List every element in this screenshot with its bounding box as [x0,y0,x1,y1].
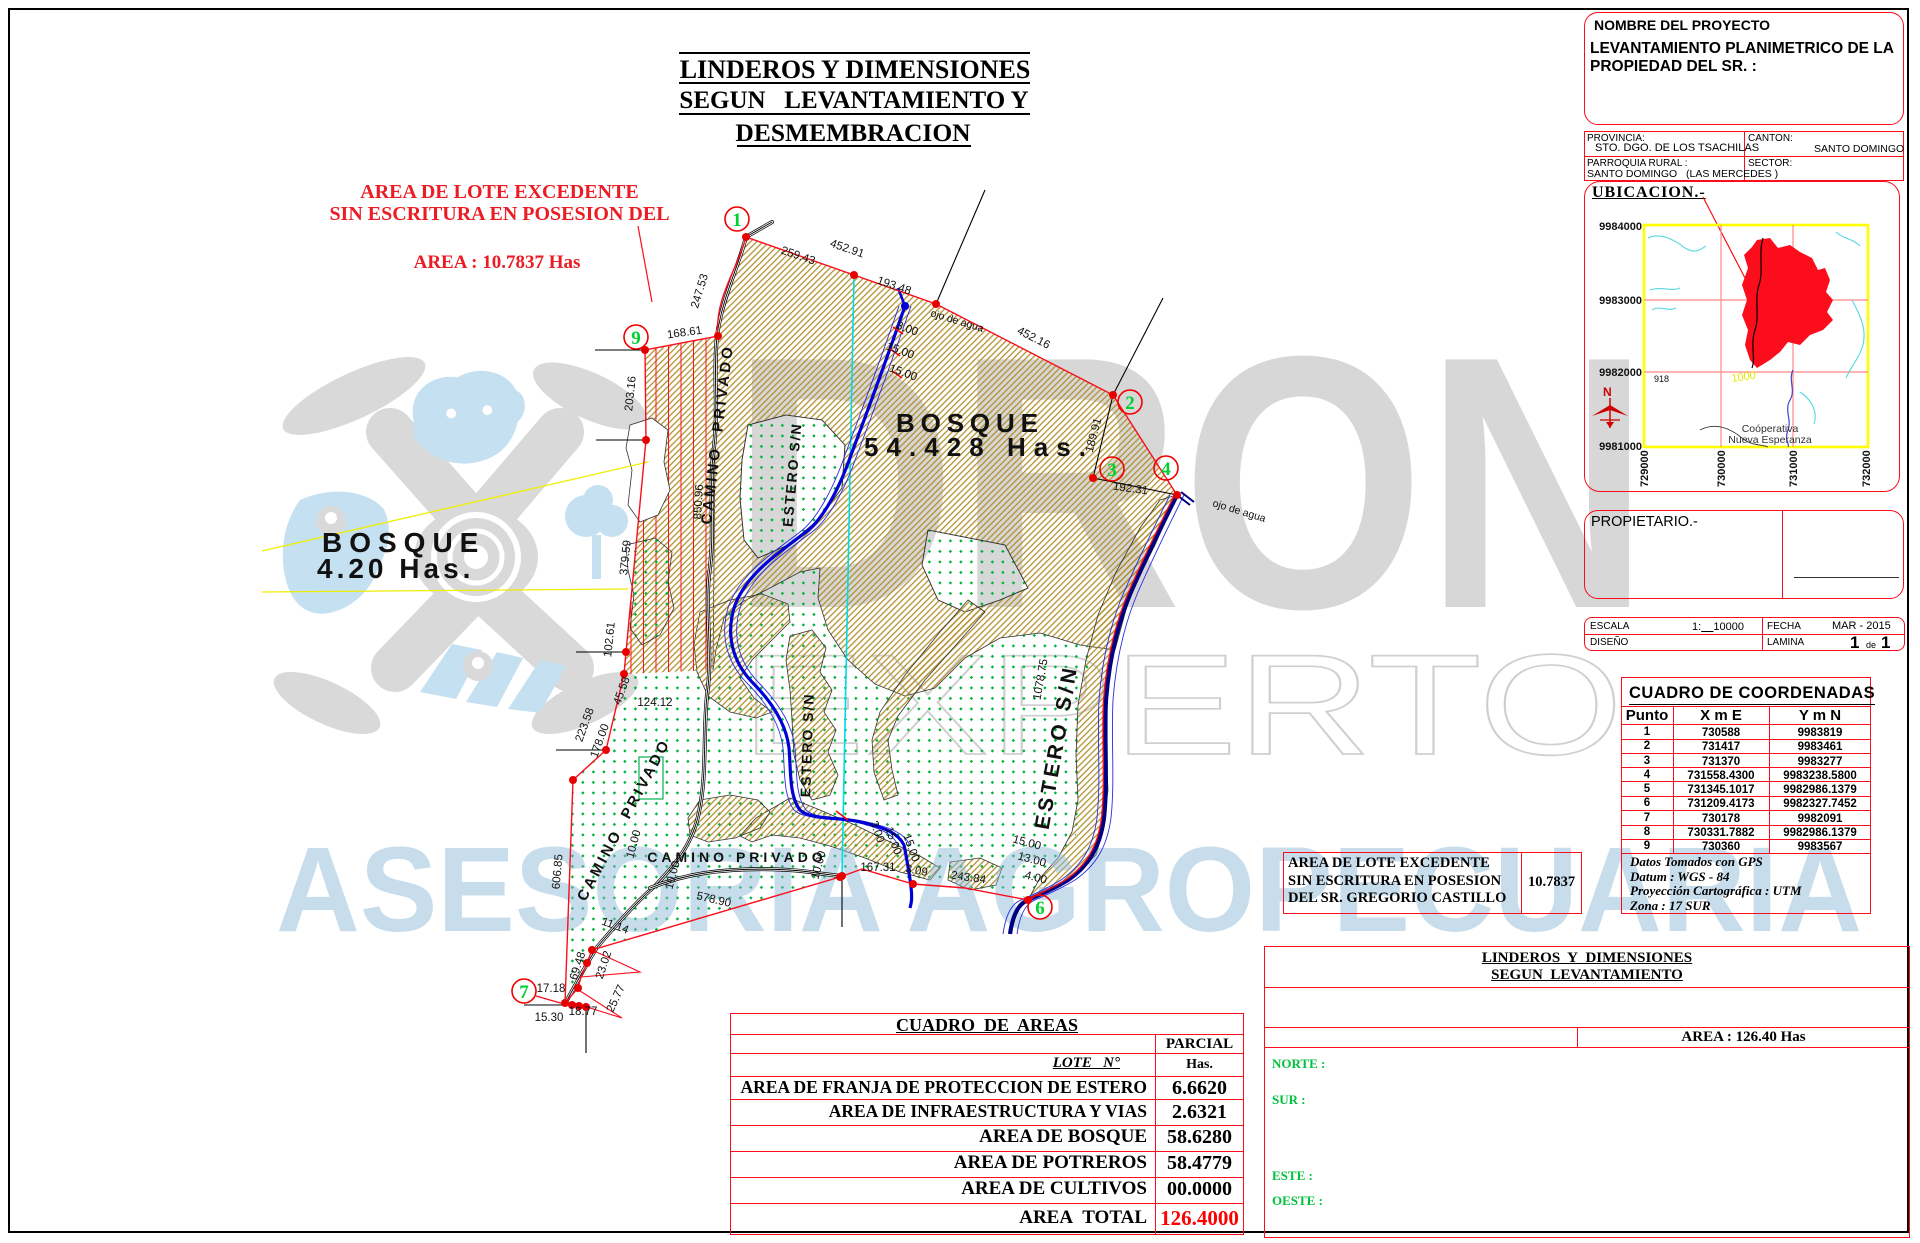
svg-text:N: N [1603,385,1612,399]
svg-text:15.30: 15.30 [535,1012,564,1024]
svg-text:9982000: 9982000 [1599,367,1642,379]
svg-text:Nueva Esperanza: Nueva Esperanza [1728,434,1812,446]
svg-text:124.12: 124.12 [637,697,672,709]
svg-text:731000: 731000 [1788,450,1800,487]
svg-text:18.77: 18.77 [569,1006,598,1018]
svg-text:247.53: 247.53 [689,273,711,310]
svg-text:9981000: 9981000 [1599,441,1642,453]
svg-text:732000: 732000 [1861,450,1873,487]
svg-text:7: 7 [519,982,529,1003]
svg-text:9984000: 9984000 [1599,221,1642,233]
svg-text:6: 6 [1035,898,1045,919]
svg-text:9: 9 [631,328,641,349]
svg-text:452.91: 452.91 [828,238,865,261]
svg-text:4: 4 [1161,459,1171,480]
svg-text:25.77: 25.77 [605,983,628,1014]
svg-text:9983000: 9983000 [1599,295,1642,307]
svg-text:1000: 1000 [1731,370,1757,385]
svg-text:167.31: 167.31 [860,862,895,874]
svg-text:918: 918 [1654,374,1669,384]
svg-text:4.20 Has.: 4.20 Has. [317,553,474,584]
svg-text:729000: 729000 [1639,450,1651,487]
svg-text:730000: 730000 [1716,450,1728,487]
svg-text:3: 3 [1107,460,1117,481]
svg-text:1: 1 [732,210,742,231]
svg-text:2: 2 [1125,393,1135,414]
svg-text:850.96: 850.96 [692,484,706,520]
svg-text:168.61: 168.61 [666,325,703,342]
svg-text:17.18: 17.18 [537,983,566,995]
